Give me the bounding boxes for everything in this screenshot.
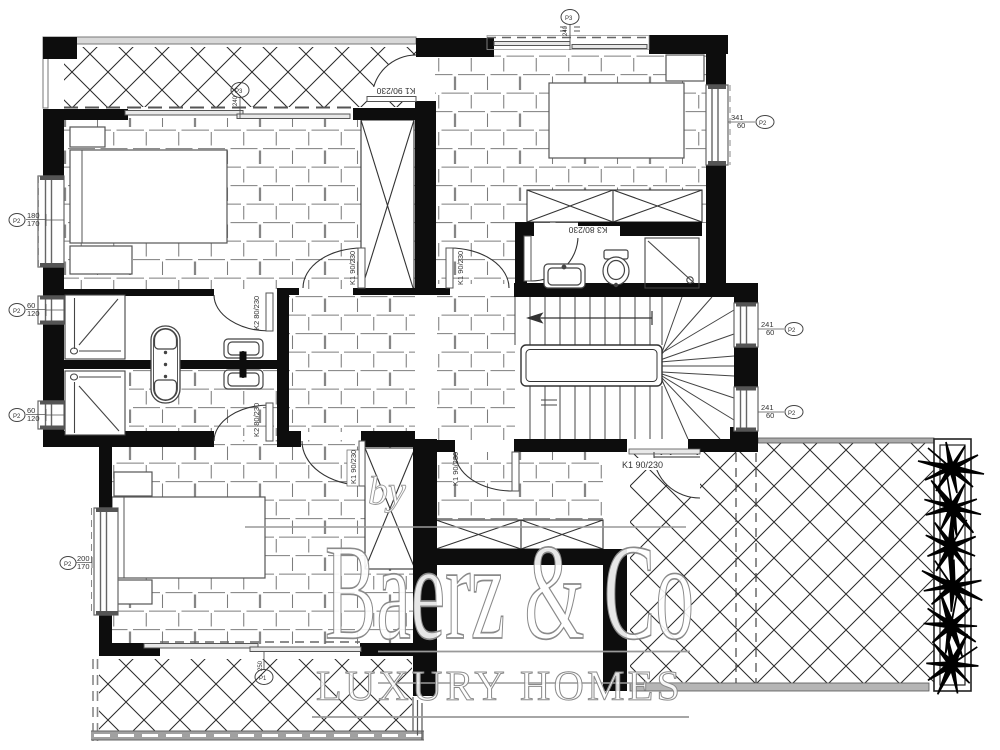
- svg-text:P2: P2: [13, 219, 21, 225]
- svg-text:120: 120: [27, 309, 40, 318]
- svg-text:240: 240: [233, 95, 239, 106]
- svg-text:K2 80/230: K2 80/230: [252, 296, 261, 330]
- svg-text:K1 90/230: K1 90/230: [349, 450, 358, 484]
- svg-text:K2 80/230: K2 80/230: [252, 403, 261, 437]
- svg-text:P2: P2: [788, 328, 796, 334]
- svg-text:K3 80/230: K3 80/230: [568, 225, 607, 235]
- svg-text:P3: P3: [565, 16, 573, 22]
- svg-text:K1 90/230: K1 90/230: [456, 251, 465, 285]
- svg-text:P2: P2: [788, 411, 796, 417]
- svg-text:P2: P2: [759, 121, 767, 127]
- svg-text:P2: P2: [13, 414, 21, 420]
- svg-text:170: 170: [77, 562, 90, 571]
- svg-text:P2: P2: [64, 562, 72, 568]
- svg-text:K1 90/230: K1 90/230: [348, 251, 357, 285]
- svg-text:K1 90/230: K1 90/230: [451, 452, 460, 486]
- svg-text:250: 250: [258, 660, 264, 671]
- svg-text:LUXURY HOMES: LUXURY HOMES: [316, 664, 683, 710]
- svg-text:P3: P3: [235, 89, 243, 95]
- svg-text:K1 90/230: K1 90/230: [376, 86, 415, 96]
- svg-text:P2: P2: [13, 309, 21, 315]
- svg-text:170: 170: [27, 219, 40, 228]
- svg-text:120: 120: [27, 414, 40, 423]
- svg-text:Baerz & Co: Baerz & Co: [325, 517, 694, 669]
- svg-text:K1 90/230: K1 90/230: [622, 460, 663, 470]
- svg-text:by: by: [368, 468, 406, 513]
- svg-text:P1: P1: [259, 676, 267, 682]
